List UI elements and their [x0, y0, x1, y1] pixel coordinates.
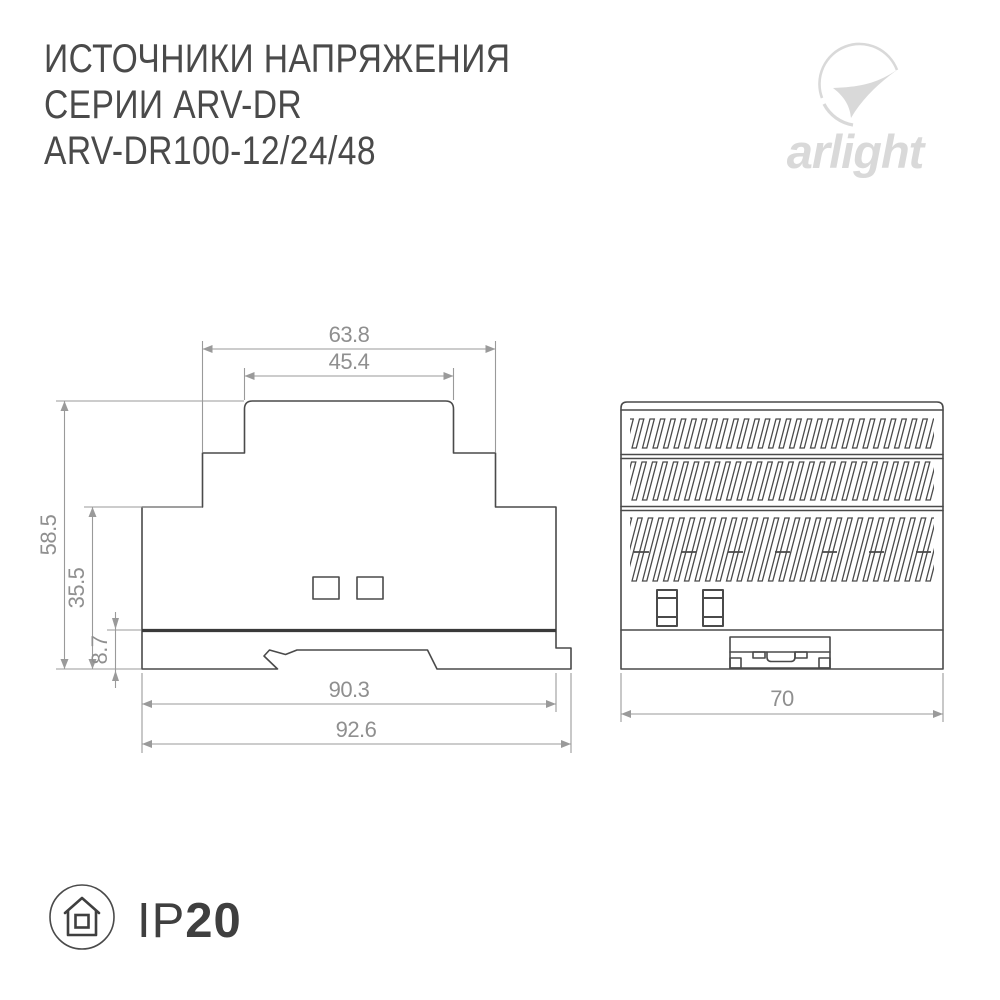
side-window-left: [313, 577, 339, 599]
house-in-circle-icon: [50, 885, 114, 949]
side-view-outline: [142, 401, 571, 669]
dim-rail-height: 8.7: [87, 612, 141, 688]
dim-top-inner-width: 45.4: [245, 349, 454, 400]
dim-label-92-6: 92.6: [336, 717, 377, 742]
front-view: 70: [621, 402, 943, 722]
dim-label-58-5: 58.5: [36, 514, 61, 555]
vent-band-3: [630, 516, 934, 583]
side-window-right: [357, 577, 383, 599]
din-clip: [730, 637, 830, 668]
terminal-block-left: [657, 590, 677, 626]
dim-body-height: 35.5: [64, 507, 202, 669]
dim-total-height: 58.5: [36, 401, 244, 669]
dim-label-45-4: 45.4: [329, 349, 370, 374]
side-view: 45.4 63.8 58.5 35.5: [36, 322, 571, 753]
dim-label-63-8: 63.8: [329, 322, 370, 347]
technical-drawing: 45.4 63.8 58.5 35.5: [0, 0, 1000, 1000]
ip20-badge: IP20: [45, 875, 305, 965]
dim-label-70: 70: [770, 686, 794, 711]
dim-label-90-3: 90.3: [329, 677, 370, 702]
dim-front-width: 70: [621, 673, 943, 722]
vent-band-2: [630, 460, 934, 502]
datasheet-page: ИСТОЧНИКИ НАПРЯЖЕНИЯ СЕРИИ ARV-DR ARV-DR…: [0, 0, 1000, 1000]
dim-label-8-7: 8.7: [87, 635, 112, 664]
dim-top-outer-width: 63.8: [203, 322, 496, 452]
ip-prefix: IP: [137, 894, 185, 948]
vent-band-1: [630, 417, 934, 450]
ip20-label: IP20: [137, 894, 242, 948]
ip-value: 20: [185, 894, 242, 948]
terminal-block-right: [703, 590, 723, 626]
dim-label-35-5: 35.5: [64, 567, 89, 608]
